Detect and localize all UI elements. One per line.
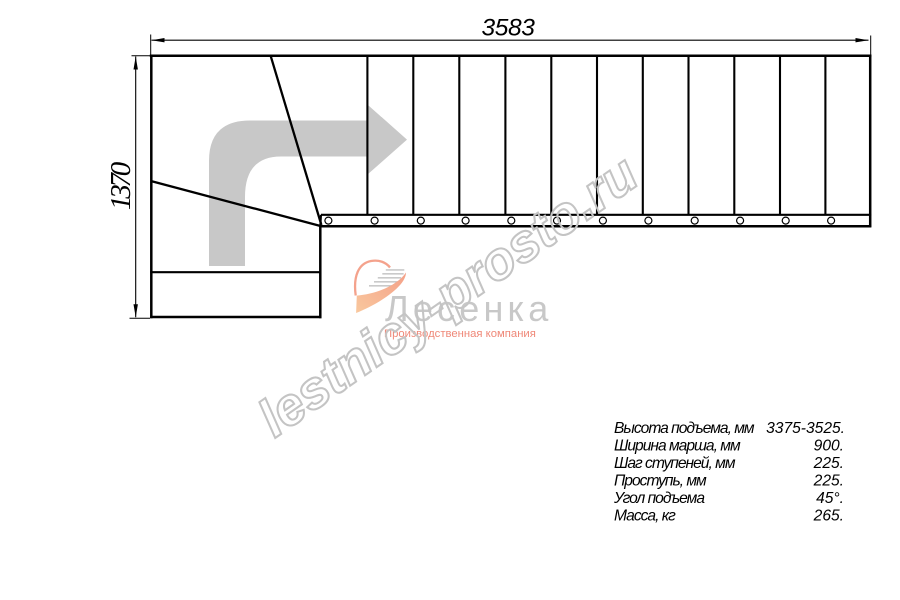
svg-text:Высота подъема, мм: Высота подъема, мм (614, 420, 755, 437)
svg-text:225.: 225. (813, 473, 844, 490)
svg-text:3375-3525.: 3375-3525. (766, 420, 845, 437)
svg-text:265.: 265. (813, 508, 844, 525)
svg-text:Ширина марша, мм: Ширина марша, мм (614, 438, 741, 455)
svg-text:Угол подъема: Угол подъема (613, 490, 705, 507)
svg-text:Шаг ступеней, мм: Шаг ступеней, мм (614, 455, 736, 472)
svg-text:225.: 225. (813, 455, 844, 472)
svg-text:Масса, кг: Масса, кг (614, 508, 676, 525)
svg-text:3583: 3583 (482, 15, 536, 42)
svg-text:45°.: 45°. (816, 490, 844, 507)
svg-text:1370: 1370 (105, 161, 137, 210)
svg-text:900.: 900. (814, 438, 844, 455)
svg-text:Проступь, мм: Проступь, мм (614, 473, 707, 490)
